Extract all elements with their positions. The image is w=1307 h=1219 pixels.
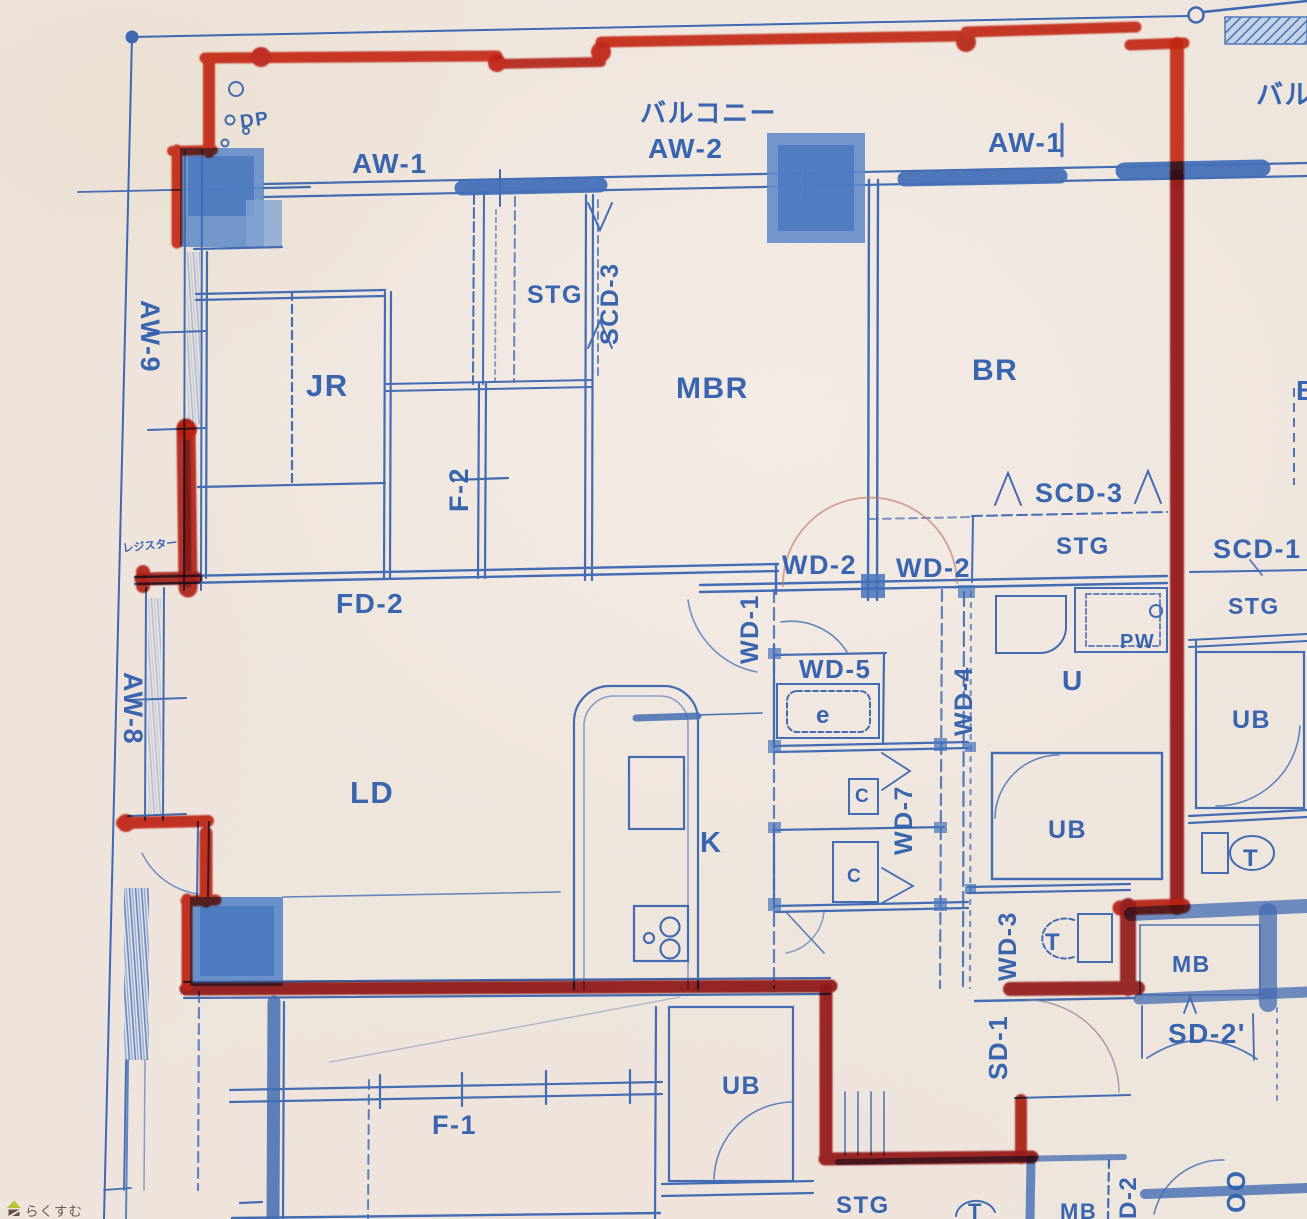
svg-text:STG: STG xyxy=(1056,533,1110,560)
svg-text:UB: UB xyxy=(1232,706,1271,734)
svg-text:SD-2': SD-2' xyxy=(1168,1018,1246,1049)
svg-text:WD-1: WD-1 xyxy=(736,594,764,664)
svg-text:STG: STG xyxy=(1228,593,1280,619)
svg-text:MBR: MBR xyxy=(676,372,749,405)
svg-text:AW-1: AW-1 xyxy=(988,127,1063,158)
svg-text:STG: STG xyxy=(527,281,583,309)
svg-text:STG: STG xyxy=(836,1192,890,1219)
svg-text:WD-2: WD-2 xyxy=(896,553,971,583)
svg-text:F-2: F-2 xyxy=(444,467,474,512)
svg-text:OO: OO xyxy=(1221,1170,1251,1213)
svg-text:MB: MB xyxy=(1060,1199,1097,1219)
svg-text:SCD-3: SCD-3 xyxy=(596,262,624,345)
svg-text:C: C xyxy=(847,866,862,887)
svg-text:UB: UB xyxy=(722,1072,761,1100)
svg-text:AW-2: AW-2 xyxy=(648,133,723,164)
svg-text:B: B xyxy=(1296,375,1307,406)
svg-text:UB: UB xyxy=(1048,816,1087,844)
svg-text:e: e xyxy=(816,702,831,729)
svg-text:BR: BR xyxy=(972,354,1018,387)
svg-text:AW-9: AW-9 xyxy=(135,300,165,373)
svg-text:WD-7: WD-7 xyxy=(890,785,918,855)
svg-text:T: T xyxy=(1243,845,1259,872)
svg-text:らくすむ: らくすむ xyxy=(25,1204,83,1219)
svg-text:WD-3: WD-3 xyxy=(994,911,1022,981)
svg-text:D-2: D-2 xyxy=(1115,1176,1142,1219)
svg-text:PW: PW xyxy=(1120,631,1155,653)
svg-text:WD-2: WD-2 xyxy=(782,550,857,580)
svg-text:T: T xyxy=(968,1199,983,1219)
svg-text:T: T xyxy=(1045,929,1061,956)
svg-text:JR: JR xyxy=(306,368,349,403)
svg-text:K: K xyxy=(700,827,722,859)
svg-text:DP: DP xyxy=(239,108,271,133)
svg-text:F-1: F-1 xyxy=(432,1110,477,1140)
svg-text:SCD-3: SCD-3 xyxy=(1035,478,1124,508)
svg-text:LD: LD xyxy=(350,775,394,810)
svg-text:SCD-1: SCD-1 xyxy=(1213,534,1302,564)
svg-text:C: C xyxy=(855,786,870,807)
svg-text:MB: MB xyxy=(1172,951,1211,977)
svg-text:U: U xyxy=(1062,665,1084,696)
svg-text:WD-4: WD-4 xyxy=(950,666,978,736)
svg-text:バルコニー: バルコニー xyxy=(640,98,777,128)
svg-text:AW-1: AW-1 xyxy=(352,148,427,179)
svg-text:SD-1: SD-1 xyxy=(983,1015,1013,1080)
svg-text:WD-5: WD-5 xyxy=(799,654,871,684)
svg-text:AW-8: AW-8 xyxy=(118,672,148,745)
svg-text:バル: バル xyxy=(1256,80,1307,110)
svg-text:FD-2: FD-2 xyxy=(336,588,404,619)
